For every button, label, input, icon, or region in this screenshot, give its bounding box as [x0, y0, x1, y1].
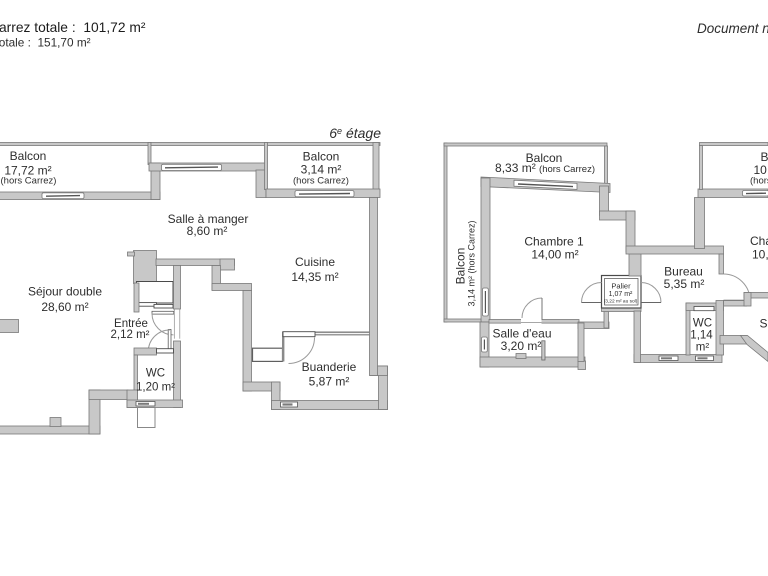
svg-text:Salle de bains: Salle de bains — [760, 317, 768, 331]
svg-text:Balcon: Balcon — [454, 248, 468, 285]
svg-text:28,60 m²: 28,60 m² — [41, 300, 88, 314]
svg-text:(hors Carrez): (hors Carrez) — [293, 175, 349, 186]
svg-text:Séjour double: Séjour double — [28, 285, 102, 299]
svg-text:totale : 151,70 m²: totale : 151,70 m² — [0, 36, 91, 50]
svg-text:1,07 m²: 1,07 m² — [609, 291, 633, 298]
svg-text:6e étage: 6e étage — [329, 125, 381, 141]
svg-text:Document non contractuel: Document non contractuel — [697, 21, 768, 36]
svg-text:3,14 m² (hors Carrez): 3,14 m² (hors Carrez) — [467, 220, 477, 306]
svg-text:(3,22 m² au sol): (3,22 m² au sol) — [604, 298, 638, 304]
svg-text:m²: m² — [696, 342, 710, 354]
svg-text:Carrez totale : 101,72 m²: Carrez totale : 101,72 m² — [0, 20, 146, 35]
svg-text:1,20 m²: 1,20 m² — [136, 382, 175, 394]
svg-text:(hors Carrez): (hors Carrez) — [1, 176, 57, 187]
svg-text:WC: WC — [146, 368, 165, 380]
svg-text:10,00 m²: 10,00 m² — [752, 248, 768, 262]
svg-text:2,12 m²: 2,12 m² — [111, 329, 150, 341]
svg-text:Balcon: Balcon — [303, 150, 340, 164]
svg-text:5,87 m²: 5,87 m² — [309, 375, 350, 389]
svg-text:14,35 m²: 14,35 m² — [291, 270, 338, 284]
svg-text:Chambre 1: Chambre 1 — [524, 235, 584, 249]
svg-text:(hors Carrez): (hors Carrez) — [750, 176, 768, 187]
svg-text:14,00 m²: 14,00 m² — [531, 248, 578, 262]
svg-text:Buanderie: Buanderie — [302, 360, 357, 374]
svg-text:Cuisine: Cuisine — [295, 255, 335, 269]
svg-text:Palier: Palier — [611, 282, 631, 291]
svg-text:Chambre 2: Chambre 2 — [750, 234, 768, 248]
svg-text:Balcon: Balcon — [761, 150, 768, 164]
svg-text:WC: WC — [693, 318, 712, 330]
svg-text:Balcon: Balcon — [10, 149, 47, 163]
svg-text:5,35 m²: 5,35 m² — [664, 277, 705, 291]
svg-text:1,14: 1,14 — [690, 330, 713, 342]
svg-text:3,20 m²: 3,20 m² — [501, 339, 542, 353]
svg-text:8,33 m² (hors Carrez): 8,33 m² (hors Carrez) — [495, 161, 595, 175]
svg-text:8,60 m²: 8,60 m² — [187, 224, 228, 238]
